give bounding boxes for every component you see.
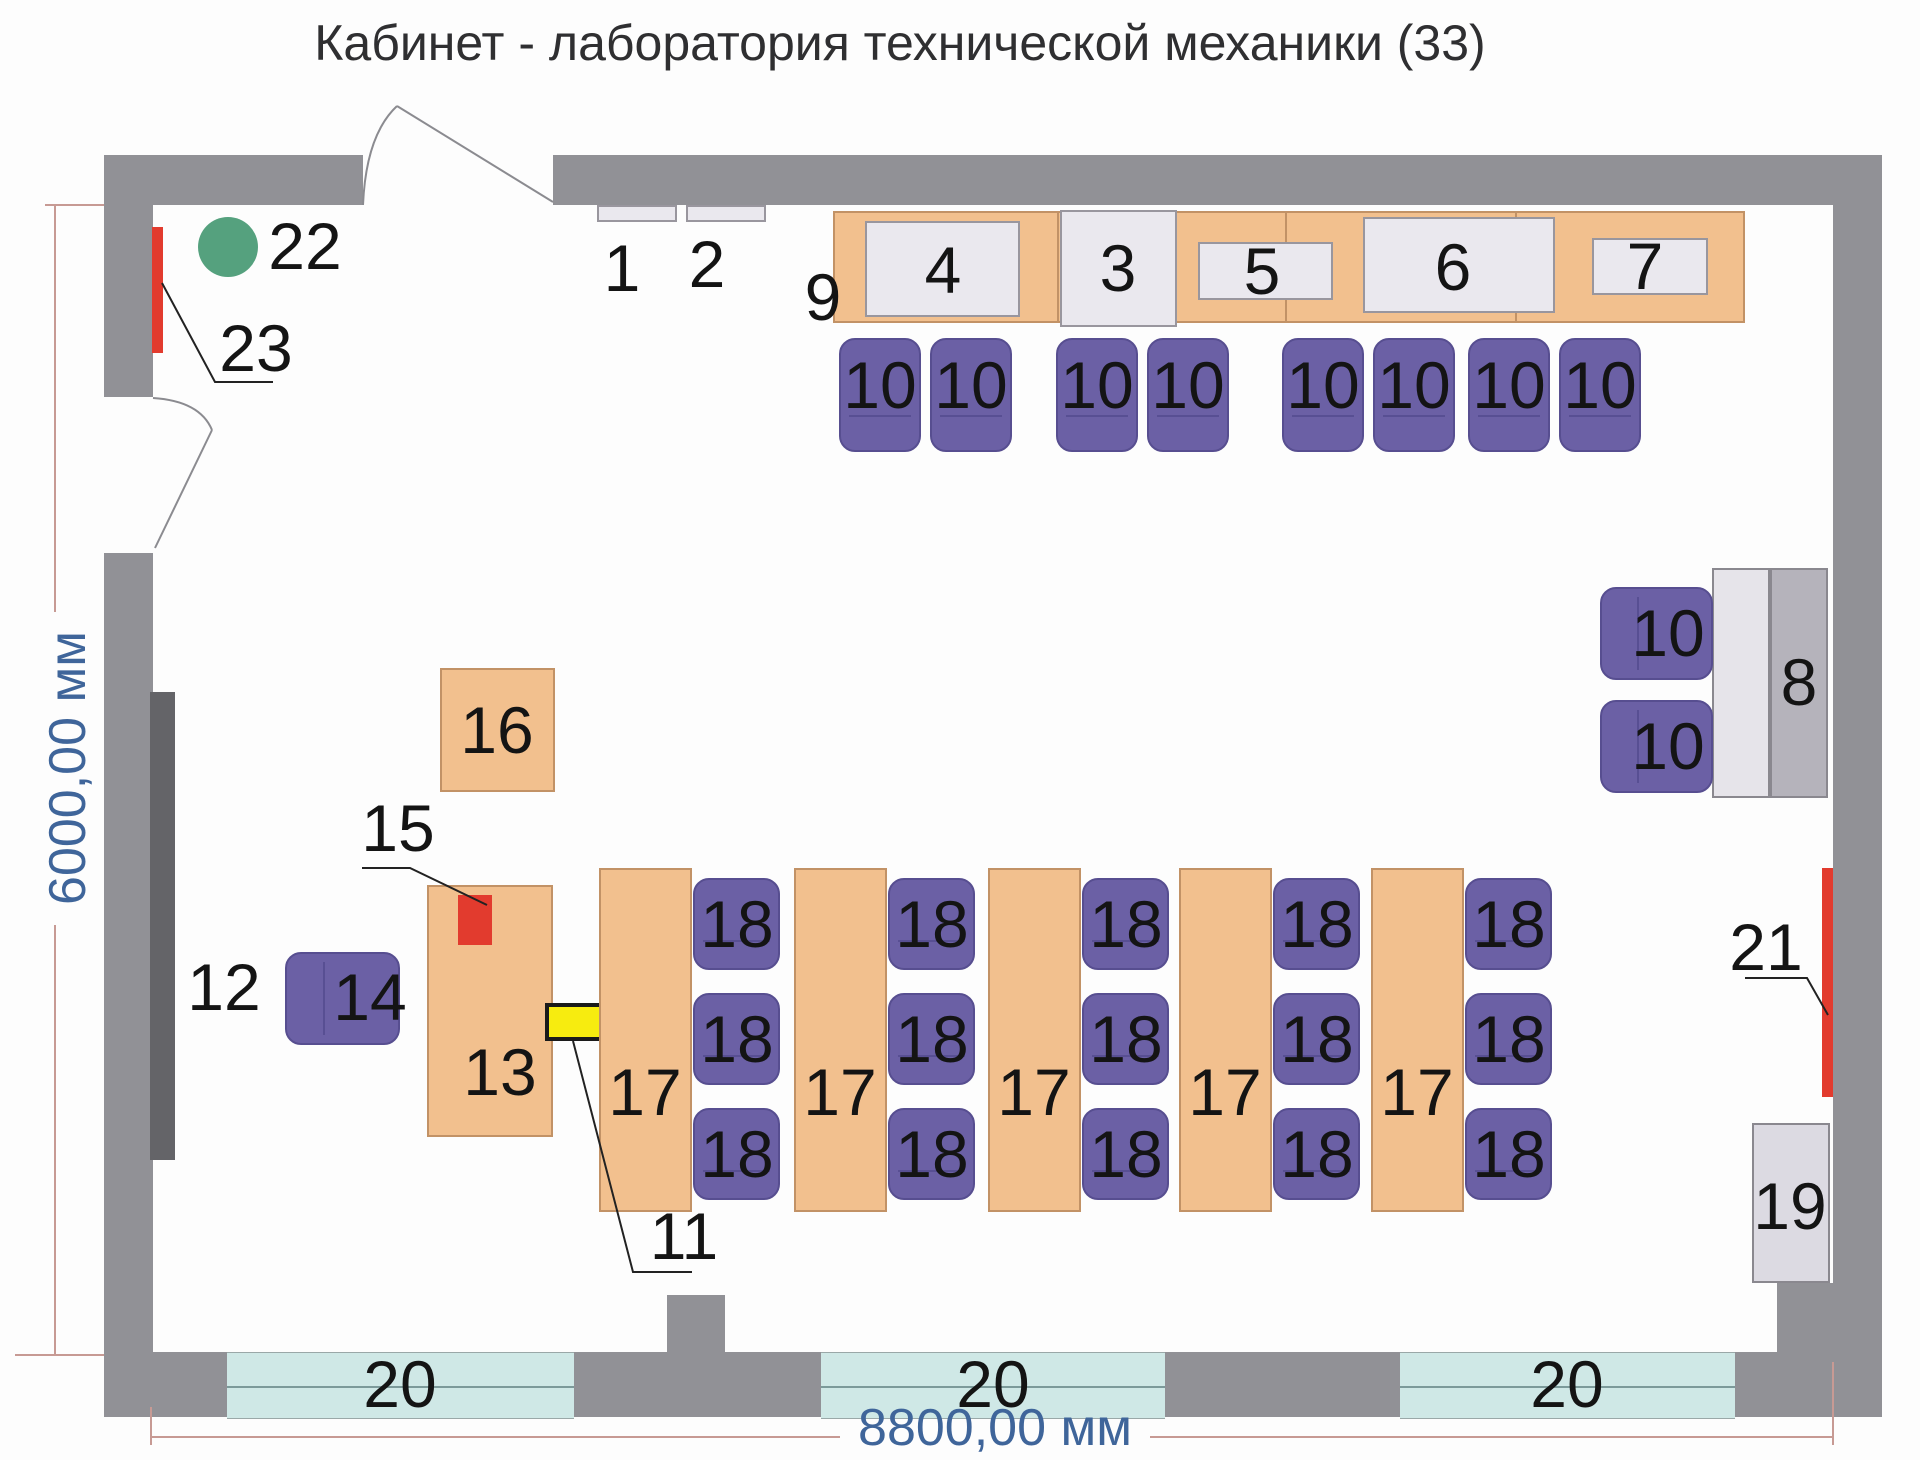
cabinet-left-section xyxy=(1712,568,1770,798)
label-desk-17: 17 xyxy=(1380,1059,1453,1125)
door-leaf-left xyxy=(155,430,212,548)
label-desk-17: 17 xyxy=(803,1059,876,1125)
label-chair-18: 18 xyxy=(1280,1006,1353,1072)
label-desk-17: 17 xyxy=(1188,1059,1261,1125)
chalkboard xyxy=(150,692,175,1160)
label-22: 22 xyxy=(268,213,341,279)
student-desk-3 xyxy=(988,868,1081,1212)
label-14: 14 xyxy=(333,964,406,1030)
label-15: 15 xyxy=(361,795,434,861)
label-21: 21 xyxy=(1729,914,1802,980)
label-5: 5 xyxy=(1244,238,1281,304)
label-window-20: 20 xyxy=(363,1351,436,1417)
label-chair-18: 18 xyxy=(895,1006,968,1072)
wall-shelf-2 xyxy=(686,205,766,222)
label-chair-10: 10 xyxy=(843,352,916,418)
green-marker xyxy=(198,217,258,277)
label-chair-18: 18 xyxy=(895,891,968,957)
label-chair-18: 18 xyxy=(700,1006,773,1072)
floor-plan: Кабинет - лаборатория технической механи… xyxy=(0,0,1920,1460)
label-chair-10: 10 xyxy=(1377,352,1450,418)
wall-shelf-1 xyxy=(597,205,677,222)
label-12: 12 xyxy=(187,954,260,1020)
door-arc-top xyxy=(363,106,397,205)
label-11: 11 xyxy=(650,1203,719,1269)
dimension-height-label: 6000,00 мм xyxy=(38,631,98,905)
label-desk-17: 17 xyxy=(608,1059,681,1125)
label-16: 16 xyxy=(460,697,533,763)
wall-left-upper xyxy=(104,155,153,397)
wall-pillar-middle xyxy=(667,1295,725,1355)
label-window-20: 20 xyxy=(1530,1351,1603,1417)
label-chair-18: 18 xyxy=(700,1121,773,1187)
label-chair-18: 18 xyxy=(1472,891,1545,957)
student-desk-5 xyxy=(1371,868,1464,1212)
label-chair-18: 18 xyxy=(895,1121,968,1187)
label-13: 13 xyxy=(463,1039,536,1105)
label-9: 9 xyxy=(805,264,842,330)
label-chair-10: 10 xyxy=(1563,352,1636,418)
label-19: 19 xyxy=(1753,1173,1826,1239)
label-4: 4 xyxy=(925,237,962,303)
dimension-width-label: 8800,00 мм xyxy=(858,1398,1132,1458)
label-chair-10: 10 xyxy=(1631,713,1704,779)
label-chair-10: 10 xyxy=(1472,352,1545,418)
label-chair-10: 10 xyxy=(1631,600,1704,666)
wall-right xyxy=(1833,155,1882,1417)
label-desk-17: 17 xyxy=(997,1059,1070,1125)
label-chair-18: 18 xyxy=(1472,1006,1545,1072)
label-chair-10: 10 xyxy=(1286,352,1359,418)
wall-top xyxy=(553,155,1882,205)
label-chair-18: 18 xyxy=(700,891,773,957)
label-3: 3 xyxy=(1100,235,1137,301)
bench-divider xyxy=(1057,213,1059,321)
wall-left-lower xyxy=(104,553,153,1417)
label-chair-18: 18 xyxy=(1089,1006,1162,1072)
label-chair-10: 10 xyxy=(1151,352,1224,418)
wall-pillar-right xyxy=(1777,1283,1833,1355)
wall-strip-right xyxy=(1822,868,1833,1097)
label-chair-18: 18 xyxy=(1280,891,1353,957)
label-chair-18: 18 xyxy=(1280,1121,1353,1187)
label-8: 8 xyxy=(1781,649,1818,715)
label-6: 6 xyxy=(1435,234,1472,300)
plan-title: Кабинет - лаборатория технической механи… xyxy=(300,14,1500,72)
label-chair-10: 10 xyxy=(934,352,1007,418)
door-arc-left xyxy=(153,398,212,430)
label-chair-18: 18 xyxy=(1089,1121,1162,1187)
door-leaf-top xyxy=(397,106,553,202)
label-23: 23 xyxy=(219,315,292,381)
label-7: 7 xyxy=(1627,233,1664,299)
student-desk-2 xyxy=(794,868,887,1212)
label-chair-10: 10 xyxy=(1060,352,1133,418)
label-2: 2 xyxy=(689,231,726,297)
label-1: 1 xyxy=(604,235,641,301)
student-desk-1 xyxy=(599,868,692,1212)
label-chair-18: 18 xyxy=(1472,1121,1545,1187)
wall-strip-top-left xyxy=(152,227,163,353)
red-device xyxy=(458,895,492,945)
label-chair-18: 18 xyxy=(1089,891,1162,957)
student-desk-4 xyxy=(1179,868,1272,1212)
